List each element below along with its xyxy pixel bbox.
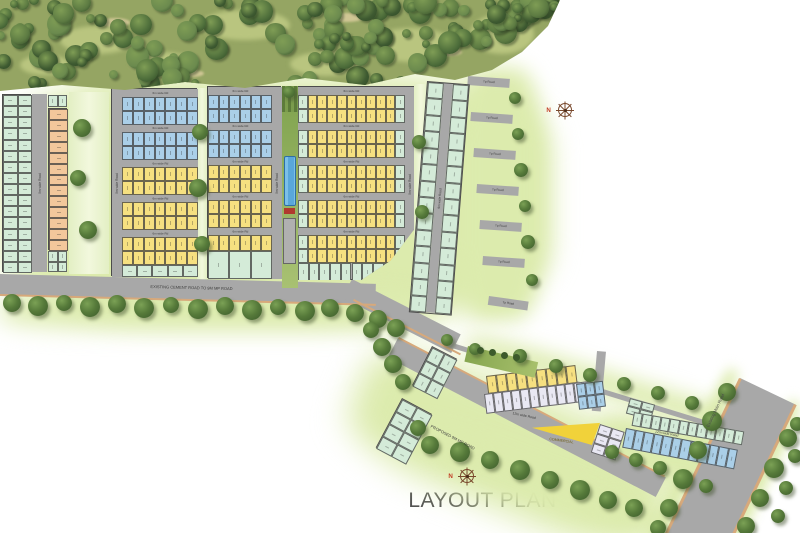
tree-icon [189,179,207,197]
plot-cell [317,214,327,228]
tree-icon [790,417,800,431]
plot-mark [8,256,12,257]
plot-cell [327,214,337,228]
plot-cell [356,179,366,193]
plot-mark [370,135,371,139]
plot-mark [170,137,171,141]
plot-mark [591,400,592,404]
tree-icon [412,135,426,149]
tree-icon [320,50,333,63]
plot-mark [312,170,313,174]
plot-cell [366,144,376,158]
plot-grid [48,251,67,272]
plot-cell [356,109,366,123]
plot-mark [332,149,333,153]
plot-cell [165,202,176,216]
plot-cell [229,214,240,228]
plot-cell [356,249,366,263]
plot-mark [589,387,590,391]
plot-cell [386,235,396,249]
plot-cell [251,95,262,109]
plot-mark [332,254,333,258]
plot-cell [251,144,262,158]
plot-cell [144,216,155,230]
plot-cell [122,202,133,216]
plot-mark [8,189,12,190]
plot-cell [347,235,357,249]
plot-mark [332,170,333,174]
plot-mark [446,361,449,365]
plot-cell [327,165,337,179]
plot-cell [144,111,155,125]
tree-icon [283,86,295,98]
plot-mark [312,184,313,188]
road: 6m wide Rd [208,193,272,200]
road: 9m wide Road [32,94,47,272]
compass-north-label: N [545,105,553,115]
plot-cell [395,200,405,214]
plot-cell [395,130,405,144]
plot-cell [219,144,230,158]
road-label: 9m wide Road [112,89,122,277]
road-label: 6m wide Rd [122,89,198,97]
plot-cell [208,179,219,193]
plot-cell [144,97,155,111]
plot-mark [223,114,224,118]
plot-mark [351,114,352,118]
plot-cell [317,235,327,249]
plot-cell [219,179,230,193]
plot-mark [600,399,601,403]
plot-cell [18,106,33,117]
plot-cell [251,130,262,144]
plot-mark [181,151,182,155]
compass-north-label: N [447,471,455,481]
plot-mark [159,221,160,225]
plot-mark [603,430,607,432]
plot-mark [57,179,61,180]
tree-icon [512,3,523,14]
plot-mark [138,256,139,260]
plot-mark [390,114,391,118]
tree-icon [764,458,784,478]
plot-mark [192,102,193,106]
plot-mark [170,116,171,120]
tree-icon [395,374,411,390]
plot-cell [18,140,33,151]
plot-mark [192,137,193,141]
tree-icon [0,54,11,68]
plot-mark [261,263,262,267]
plot-cell [337,95,347,109]
plot-mark [127,172,128,176]
plot-cell [366,200,376,214]
plot-mark [341,219,342,223]
plot-mark [181,256,182,260]
plot-mark [149,221,150,225]
plot-cell [155,146,166,160]
plot-cell [347,95,357,109]
plot-cell [187,216,198,230]
plot-mark [341,240,342,244]
plot-mark [23,111,27,112]
plot-mark [170,207,171,211]
plot-mark [380,170,381,174]
plot-cell [298,249,308,263]
plot-mark [23,234,27,235]
tree-icon [617,377,631,391]
plot-mark [158,271,162,272]
road-label: 6m wide Rd [122,230,198,237]
plot-mark [525,397,526,401]
compass-rose: N [554,99,576,121]
road-label: 6m wide Rd [298,123,405,130]
plot-mark [370,254,371,258]
plot-block: 9m wide Road6m wide Rd6m wide Rd6m wide … [297,86,414,280]
plot-mark [23,156,27,157]
plot-mark [138,102,139,106]
plot-mark [234,135,235,139]
tree-icon [509,92,521,104]
plot-mark [628,437,630,441]
plot-cell [251,251,272,279]
plot-cell [3,117,18,128]
plot-mark [223,170,224,174]
plot-mark [223,100,224,104]
bush-icon [513,354,520,361]
plot-cell [165,167,176,181]
plot-cell [298,144,308,158]
tree-icon [28,76,41,89]
road: 6m wide Rd [208,228,272,235]
plot-mark [356,270,357,274]
tree-icon [550,3,558,11]
plot-mark [534,396,535,400]
plot-mark [390,219,391,223]
plot-cell [176,167,187,181]
plot-mark [138,151,139,155]
plot-cell [187,97,198,111]
plot-cell [308,179,318,193]
plot-cell [229,200,240,214]
plot-grid [48,108,67,250]
plot-mark [255,149,256,153]
tree-icon [70,170,86,186]
plot-mark [615,434,619,436]
plot-cell [386,200,396,214]
plot-cell [18,229,33,240]
plot-mark [23,145,27,146]
plot-mark [23,189,27,190]
plot-mark [57,245,61,246]
plot-cell [208,200,219,214]
road: 6m wide Rd [122,160,198,167]
plot-mark [159,116,160,120]
plot-cell [122,146,133,160]
plot-mark [213,241,214,245]
tree-icon [549,359,563,373]
plot-cell [327,144,337,158]
plot-mark [582,401,583,405]
plot-cell [18,173,33,184]
plot-mark [569,391,570,395]
plot-mark [521,379,522,383]
plot-cell [327,200,337,214]
plot-mark [322,135,323,139]
plot-mark [57,136,61,137]
plot-mark [633,403,637,405]
plot-mark [434,355,437,359]
plot-cell [155,216,166,230]
plot-mark [159,137,160,141]
plot-mark [531,377,532,381]
plot-cell [366,130,376,144]
swimming-pool [284,156,296,206]
plot-mark [245,100,246,104]
plot-mark [245,170,246,174]
plot-cell [165,146,176,160]
tree-icon [699,479,713,493]
plot-mark [266,114,267,118]
plot-mark [239,263,240,267]
plot-cell [122,265,137,277]
plot-cell [376,109,386,123]
plot-mark [351,254,352,258]
plot-cell [155,97,166,111]
plot-mark [637,438,639,442]
tree-icon [458,5,469,16]
tree-icon [73,119,91,137]
plot-mark [127,137,128,141]
clubhouse-roof [284,208,295,214]
plot-mark [213,114,214,118]
plot-mark [192,116,193,120]
plot-mark [127,116,128,120]
plot-mark [302,135,303,139]
tree-icon [363,322,379,338]
plot-cell [3,217,18,228]
plot-mark [23,211,27,212]
plot-mark [218,263,219,267]
plot-mark [312,240,313,244]
plot-cell [49,218,68,229]
plot-cell [298,130,308,144]
plot-mark [332,184,333,188]
plot-mark [234,149,235,153]
plot-mark [400,114,401,118]
plot-cell [187,251,198,265]
plot-mark [332,100,333,104]
plot-cell [229,144,240,158]
plot-cell [3,162,18,173]
road: 6m wide Rd [208,158,272,165]
plot-mark [646,406,650,408]
tree-icon [29,0,39,5]
plot-mark [390,184,391,188]
plot-mark [400,170,401,174]
plot-mark [57,212,61,213]
plot-mark [322,114,323,118]
plot-mark [8,200,12,201]
plot-mark [181,186,182,190]
tree-icon [177,21,197,41]
road: 6m wide Rd [298,228,405,235]
plot-grid [576,381,606,410]
plot-mark [332,240,333,244]
plot-cell [144,132,155,146]
plot-mark [159,172,160,176]
tree-icon [415,205,429,219]
plot-cell [347,109,357,123]
tree-icon [163,297,179,313]
plot-mark [341,149,342,153]
plot-cell [261,144,272,158]
plot-mark [149,256,150,260]
plot-cell [337,235,347,249]
plot-cell [565,365,577,384]
plot-cell [165,111,176,125]
plot-cell [386,179,396,193]
tree-icon [307,2,322,17]
plot-cell [356,95,366,109]
plot-mark [213,170,214,174]
plot-mark [127,256,128,260]
plot-cell [352,263,363,281]
plot-mark [23,256,27,257]
plot-mark [266,219,267,223]
plot-cell [219,214,230,228]
plot-cell [240,214,251,228]
plot-cell [261,200,272,214]
plot-mark [390,100,391,104]
tree-icon [779,481,793,495]
plot-cell [386,130,396,144]
tree-icon [510,460,530,480]
plot-cell [208,214,219,228]
plot-cell [240,130,251,144]
plot-mark [730,457,732,461]
tree-icon [685,396,699,410]
plot-mark [598,386,599,390]
plot-cell [376,214,386,228]
plot-cell [133,237,144,251]
plot-mark [341,135,342,139]
plot-cell [122,97,133,111]
plot-mark [367,270,368,274]
plot-mark [188,271,192,272]
tree-icon [629,453,643,467]
plot-mark [266,170,267,174]
plot-cell [298,263,309,281]
road-label: 6m wide Rd [208,193,272,200]
plot-cell [144,237,155,251]
plot-cell [309,263,320,281]
plot-cell [49,207,68,218]
plot-mark [57,190,61,191]
plot-cell [337,249,347,263]
plot-mark [223,135,224,139]
plot-mark [302,114,303,118]
plot-mark [266,100,267,104]
road: 6m wide Rd [122,125,198,132]
plot-block: 9m wide Road6m wide Rd6m wide Rd6m wide … [207,86,281,278]
plot-cell [49,131,68,142]
plot-cell [18,251,33,262]
plot-cell [18,206,33,217]
plot-mark [255,100,256,104]
tree-icon [346,304,364,322]
plot-cell [261,95,272,109]
plot-cell [317,144,327,158]
plot-mark [245,219,246,223]
plot-cell [317,249,327,263]
plot-cell [48,251,58,262]
layout-plan-canvas: LAYOUT PLAN 9m wide Road9m wide RoadTp R… [0,0,800,533]
plot-cell [395,144,405,158]
tree-icon [779,429,797,447]
plot-cell [176,132,187,146]
tree-icon [771,509,785,523]
plot-cell [251,200,262,214]
plot-cell [240,165,251,179]
plot-mark [390,254,391,258]
plot-cell [165,216,176,230]
plot-cell [229,251,250,279]
plot-mark [62,265,63,269]
plot-mark [23,245,27,246]
plot-cell [133,146,144,160]
road: 6m wide Rd [298,158,405,165]
plot-cell [18,162,33,173]
plot-cell [261,214,272,228]
tree-icon [80,297,100,317]
plot-mark [23,133,27,134]
plot-cell [133,97,144,111]
tree-icon [788,449,800,463]
tree-icon [528,0,548,18]
plot-mark [159,151,160,155]
plot-mark [656,442,658,446]
tree-icon [514,163,528,177]
plot-cell [176,251,187,265]
plot-mark [314,270,315,274]
plot-cell [219,95,230,109]
plot-cell [240,95,251,109]
tree-icon [342,32,351,41]
plot-mark [341,205,342,209]
plot-mark [370,205,371,209]
plot-cell [594,381,605,395]
plot-mark [266,205,267,209]
tree-icon [653,461,667,475]
plot-cell [347,130,357,144]
plot-mark [52,99,53,103]
plot-cell [376,249,386,263]
plot-cell [308,109,318,123]
plot-cell [3,240,18,251]
plot-mark [433,388,436,392]
plot-cell [58,251,68,262]
plot-mark [23,178,27,179]
plot-cell [49,175,68,186]
tree-icon [194,236,210,252]
plot-cell [356,200,366,214]
road-label: 6m wide Rd [208,158,272,165]
plot-mark [181,221,182,225]
plot-mark [400,100,401,104]
plot-mark [322,149,323,153]
plot-mark [322,254,323,258]
